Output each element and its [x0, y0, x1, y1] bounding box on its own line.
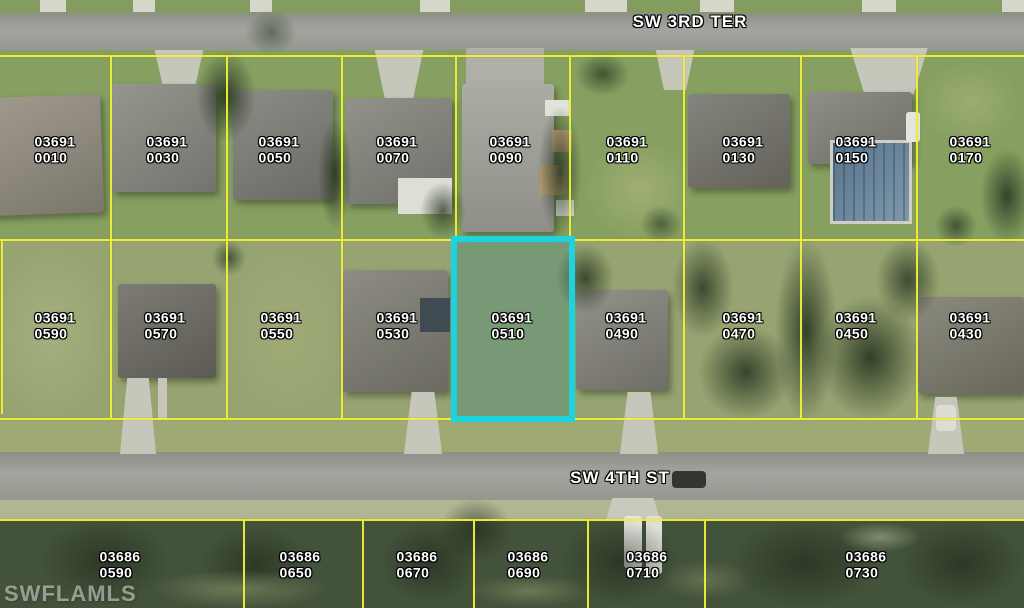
parcel-label-03691-0030: 036910030 [147, 134, 188, 165]
car-on-road [672, 471, 706, 488]
parcel-label-03691-0090: 036910090 [490, 134, 531, 165]
dry-grass-patch [920, 62, 1020, 144]
parcel-label-03691-0550: 036910550 [261, 310, 302, 341]
parcel-label-03691-0110: 036910110 [607, 134, 648, 165]
parcel-label-03691-0530: 036910530 [377, 310, 418, 341]
parcel-boundary-line [455, 56, 457, 239]
north-roof-fragment [700, 0, 734, 12]
north-roof-fragment [862, 0, 896, 12]
parcel-label-03691-0130: 036910130 [723, 134, 764, 165]
north-roof-fragment [133, 0, 155, 12]
tree-shadow [245, 10, 297, 54]
parcel-label-03691-0570: 036910570 [145, 310, 186, 341]
parcel-label-03691-0430: 036910430 [950, 310, 991, 341]
parcel-label-03691-0010: 036910010 [35, 134, 76, 165]
parcel-boundary-line [704, 519, 706, 608]
parcel-label-03686-0590: 036860590 [100, 549, 141, 580]
parcel-label-03691-0490: 036910490 [606, 310, 647, 341]
parcel-boundary-line [800, 56, 802, 418]
parcel-boundary-line [243, 519, 245, 608]
parcel-label-03691-0150: 036910150 [836, 134, 877, 165]
parcel-label-03691-0070: 036910070 [377, 134, 418, 165]
north-roof-fragment [585, 0, 627, 12]
tree-canopy [538, 105, 582, 237]
parcel-label-03686-0690: 036860690 [508, 549, 549, 580]
parcel-boundary-line [473, 519, 475, 608]
parcel-label-03686-0730: 036860730 [846, 549, 887, 580]
parcel-label-03686-0710: 036860710 [627, 549, 668, 580]
parcel-label-03686-0670: 036860670 [397, 549, 438, 580]
walkway [158, 378, 167, 420]
tree-canopy [318, 118, 352, 230]
tree-canopy [212, 240, 246, 276]
parcel-label-03691-0590: 036910590 [35, 310, 76, 341]
parcel-label-03691-0050: 036910050 [259, 134, 300, 165]
street-label-sw-3rd-ter: SW 3RD TER [633, 12, 748, 32]
parcel-boundary-line [683, 56, 685, 418]
parcel-label-03691-0450: 036910450 [836, 310, 877, 341]
tree-canopy [640, 205, 682, 243]
parcel-label-03691-0170: 036910170 [950, 134, 991, 165]
parcel-boundary-line [110, 56, 112, 418]
street-label-sw-4th-st: SW 4TH ST [570, 468, 670, 488]
scrub-strip [0, 500, 1024, 519]
tree-canopy [420, 182, 466, 240]
parcel-boundary-line [916, 56, 918, 418]
parcel-boundary-line [341, 56, 343, 418]
garage-patch [420, 298, 450, 332]
aerial-parcel-map: SW 3RD TER SW 4TH ST SWFLAMLS 0369100100… [0, 0, 1024, 608]
tree-canopy [575, 52, 630, 96]
north-roof-fragment [420, 0, 450, 12]
road-sw-3rd-ter [0, 13, 1024, 50]
parcel-boundary-line [226, 56, 228, 418]
north-roof-fragment [1002, 0, 1024, 12]
north-roof-fragment [40, 0, 66, 12]
parcel-label-03691-0510: 036910510 [492, 310, 533, 341]
parcel-label-03691-0470: 036910470 [723, 310, 764, 341]
parcel-boundary-line [569, 56, 571, 239]
parcel-boundary-line [0, 519, 1024, 521]
road-sw-4th-st [0, 452, 1024, 500]
parcel-boundary-line [362, 519, 364, 608]
parcel-boundary-line [587, 519, 589, 608]
parcel-boundary-line [1, 240, 3, 414]
tree-canopy [876, 238, 940, 322]
parcel-boundary-line [0, 55, 1024, 57]
parcel-label-03686-0650: 036860650 [280, 549, 321, 580]
mls-watermark: SWFLAMLS [4, 581, 137, 607]
